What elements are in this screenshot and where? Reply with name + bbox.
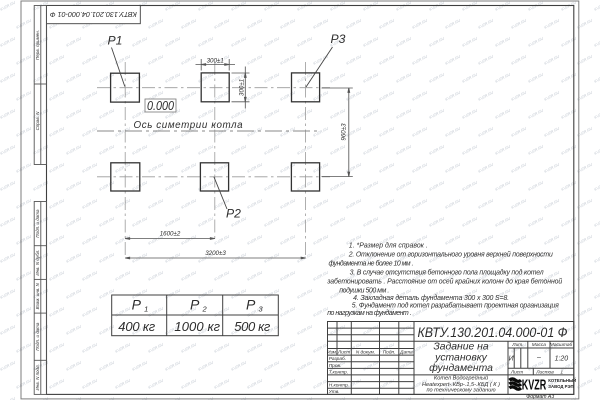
svg-text:Перв. примен.: Перв. примен. bbox=[35, 30, 40, 60]
svg-text:Взам. инв. N: Взам. инв. N bbox=[35, 282, 40, 309]
svg-text:КОТЕЛЬНЫЙ: КОТЕЛЬНЫЙ bbox=[548, 378, 576, 383]
svg-text:фундамента не более 10 мм .: фундамента не более 10 мм . bbox=[329, 260, 414, 268]
svg-text:Котел Водогрейный: Котел Водогрейный bbox=[434, 375, 488, 382]
svg-text:подушки 500 мм .: подушки 500 мм . bbox=[339, 286, 389, 294]
svg-text:5. Фундамент под котел разраб: 5. Фундамент под котел разрабатывает про… bbox=[352, 302, 559, 310]
svg-text:N докум.: N докум. bbox=[356, 350, 375, 356]
svg-text:Лист: Лист bbox=[510, 369, 523, 375]
svg-text:960±3: 960±3 bbox=[341, 123, 348, 141]
svg-text:по техническому заданию: по техническому заданию bbox=[426, 388, 496, 394]
svg-text:1000 кг: 1000 кг bbox=[174, 319, 220, 334]
svg-text:3200±3: 3200±3 bbox=[205, 250, 226, 257]
svg-text:Лит.: Лит. bbox=[511, 342, 523, 348]
svg-text:Лист: Лист bbox=[337, 350, 350, 356]
svg-text:Н.контр.: Н.контр. bbox=[329, 383, 349, 389]
svg-text:забетонировать . Расстояние от: забетонировать . Расстояние от осей край… bbox=[326, 278, 562, 286]
svg-text:Изм.: Изм. bbox=[327, 350, 337, 356]
svg-text:Формат А3: Формат А3 bbox=[526, 394, 554, 400]
svg-text:Т.контр.: Т.контр. bbox=[329, 369, 348, 375]
svg-text:ЗАВОД РЭП: ЗАВОД РЭП bbox=[548, 384, 573, 389]
svg-text:3. В случае отсутствия бетонн: 3. В случае отсутствия бетонного пола пл… bbox=[350, 269, 544, 277]
svg-text:Подп.: Подп. bbox=[383, 350, 396, 356]
svg-text:Масса: Масса bbox=[532, 342, 547, 348]
svg-text:0.000: 0.000 bbox=[147, 99, 174, 113]
svg-text:300±1: 300±1 bbox=[239, 79, 246, 96]
svg-text:Задание на: Задание на bbox=[433, 342, 489, 353]
svg-text:Ось симетрии котла: Ось симетрии котла bbox=[134, 120, 244, 131]
svg-text:Инв. N дубл.: Инв. N дубл. bbox=[35, 250, 40, 276]
svg-text:2. Отклонение от горизонтальн: 2. Отклонение от горизонтального уровня … bbox=[348, 251, 553, 259]
svg-text:Р2: Р2 bbox=[226, 206, 241, 220]
svg-text:Р3: Р3 bbox=[331, 32, 346, 46]
svg-text:КВТУ.130.201.04.000-01 Ф: КВТУ.130.201.04.000-01 Ф bbox=[418, 325, 568, 340]
svg-text:Разраб.: Разраб. bbox=[329, 356, 346, 362]
svg-text:300±1: 300±1 bbox=[207, 57, 224, 64]
svg-text:Масштаб: Масштаб bbox=[550, 342, 573, 348]
svg-text:Листов: Листов bbox=[535, 369, 554, 375]
svg-text:КВТУ.130.201.04.000-01 Ф: КВТУ.130.201.04.000-01 Ф bbox=[50, 10, 137, 19]
svg-text:500 кг: 500 кг bbox=[234, 319, 271, 334]
svg-text:1. *Размер для справок .: 1. *Размер для справок . bbox=[349, 241, 428, 249]
svg-text:4. Закладная деталь фундамент: 4. Закладная деталь фундамента 300 х 300… bbox=[353, 294, 509, 302]
svg-text:Дата: Дата bbox=[399, 350, 413, 356]
svg-text:фундамента: фундамента bbox=[429, 362, 493, 374]
svg-text:установку: установку bbox=[434, 352, 488, 363]
svg-text:KVZR: KVZR bbox=[522, 376, 547, 393]
svg-text:Подп. и дата: Подп. и дата bbox=[35, 209, 40, 238]
svg-text:по нагрузкам на фундамент .: по нагрузкам на фундамент . bbox=[327, 309, 412, 317]
svg-text:400 кг: 400 кг bbox=[118, 319, 155, 334]
svg-text:1600±2: 1600±2 bbox=[160, 231, 181, 238]
svg-text:Пров.: Пров. bbox=[329, 363, 342, 369]
svg-text:Подп. и дата: Подп. и дата bbox=[35, 322, 40, 351]
svg-text:1: 1 bbox=[560, 369, 563, 375]
svg-text:–: – bbox=[536, 355, 541, 362]
svg-text:Утв.: Утв. bbox=[329, 389, 340, 395]
svg-text:1:20: 1:20 bbox=[555, 356, 569, 363]
svg-text:Инв. N подл.: Инв. N подл. bbox=[35, 364, 40, 390]
svg-text:Справ. N: Справ. N bbox=[35, 111, 40, 131]
svg-text:Р1: Р1 bbox=[108, 34, 123, 48]
